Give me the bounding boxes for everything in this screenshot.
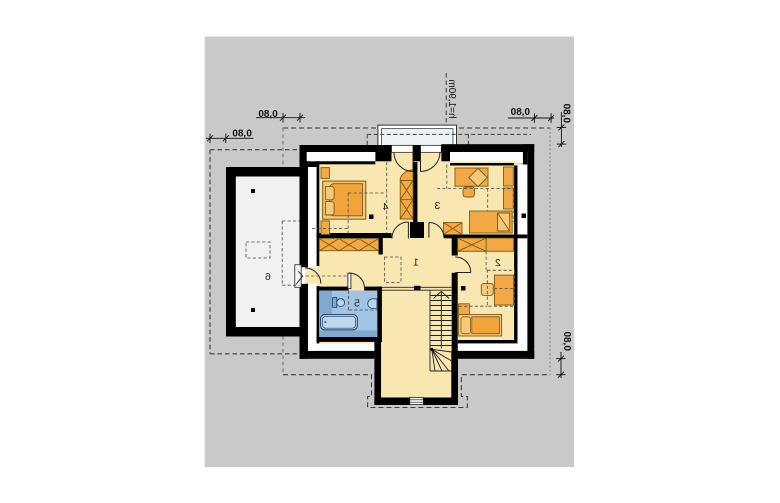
svg-text:4: 4 xyxy=(383,201,389,213)
svg-text:0,80: 0,80 xyxy=(561,331,572,351)
svg-text:0,80: 0,80 xyxy=(232,128,252,139)
svg-text:0,80: 0,80 xyxy=(510,107,530,118)
svg-text:2: 2 xyxy=(495,257,501,269)
svg-text:6: 6 xyxy=(265,271,271,283)
svg-text:h=1,90m: h=1,90m xyxy=(446,79,457,118)
svg-text:3: 3 xyxy=(434,200,440,212)
svg-text:1: 1 xyxy=(413,257,419,269)
svg-text:0,80: 0,80 xyxy=(560,103,571,123)
svg-text:0,80: 0,80 xyxy=(258,109,278,120)
svg-text:5: 5 xyxy=(354,298,360,310)
